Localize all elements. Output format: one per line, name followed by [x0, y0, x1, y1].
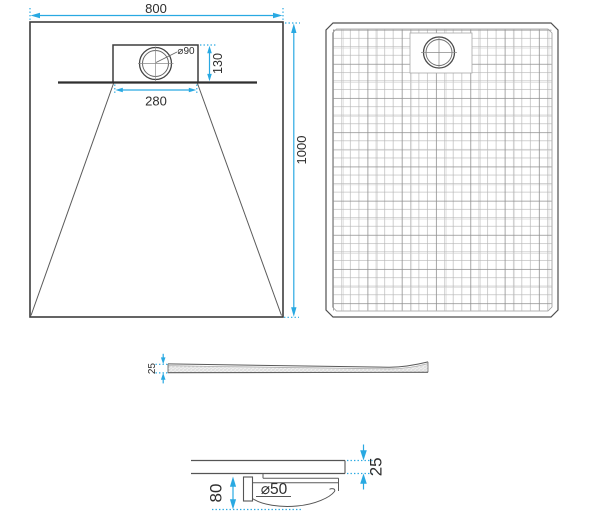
dim-label-overall-length: 1000 — [294, 136, 309, 165]
waste-trap-section: ⌀50 — [244, 474, 339, 507]
dim-label-waste-diameter: ⌀50 — [261, 481, 288, 498]
dim-label-drain-panel-height: 130 — [211, 53, 225, 74]
drain-detail-view: ⌀50 25 80 — [191, 445, 386, 510]
side-profile-view: 25 — [147, 354, 428, 384]
dim-overall-width: 800 — [30, 1, 283, 20]
profile-core-texture — [168, 364, 428, 373]
dim-label-trap-depth: 80 — [207, 484, 226, 503]
front-view: ⌀90 800 1000 130 — [30, 1, 309, 317]
drawing-canvas: ⌀90 800 1000 130 — [0, 0, 600, 523]
top-view — [326, 23, 558, 317]
dim-drain-panel-width: 280 — [115, 85, 197, 109]
dim-label-tray-thickness: 25 — [367, 457, 386, 476]
dim-label-overall-width: 800 — [145, 1, 167, 16]
technical-drawing-sheet: ⌀90 800 1000 130 — [0, 0, 600, 523]
slab-section — [191, 461, 345, 474]
dim-label-drain-diameter: ⌀90 — [177, 46, 195, 57]
dim-tray-thickness: 25 — [347, 445, 386, 490]
dim-edge-thickness: 25 — [147, 354, 169, 384]
dim-overall-length: 1000 — [284, 23, 309, 317]
dim-drain-panel-height: 130 — [200, 45, 225, 81]
dim-label-edge-thickness: 25 — [147, 363, 158, 375]
dim-label-drain-panel-width: 280 — [145, 93, 167, 108]
slope-lines — [31, 84, 282, 316]
drain-cover — [410, 33, 472, 73]
